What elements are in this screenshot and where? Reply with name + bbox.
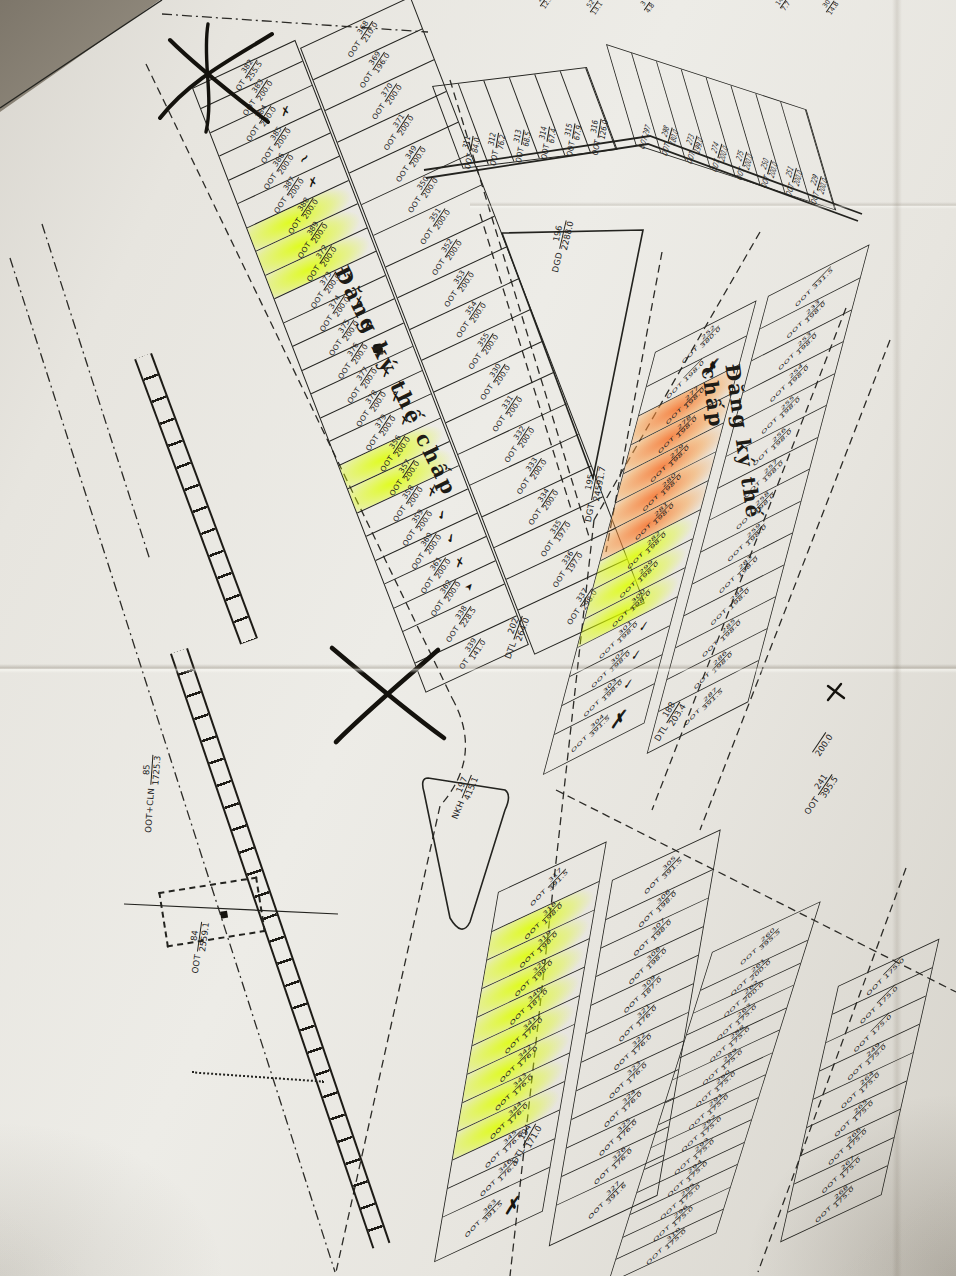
tiny-plot-label: 5213.1 xyxy=(584,0,605,17)
area-label-prefix: NKH xyxy=(449,799,465,821)
mark-arrow-icon: ➤ xyxy=(463,580,476,593)
table-backing-corner xyxy=(0,0,170,120)
area-label-prefix: DGD xyxy=(550,251,564,273)
tiny-plot-label: 147.7 xyxy=(774,0,792,13)
top-strip-left: OOT31184.0OOT31276.2OOT31368.5OOT31467.4… xyxy=(432,67,618,169)
hatched-road-segment xyxy=(134,353,258,645)
mark-x-icon: ✗ xyxy=(307,175,319,190)
mark-squiggle-icon: ~ xyxy=(296,150,312,167)
tiny-plot-label: 34.8 xyxy=(638,0,656,15)
mark-check-icon: ✔ xyxy=(623,677,632,692)
photo-corner-shadow xyxy=(0,1056,320,1276)
area-label-prefix: DGT xyxy=(583,502,596,522)
area-label-dgd: DGD 1962288.0 xyxy=(545,218,576,274)
plot-label: OOT316126.0 xyxy=(586,116,610,158)
dotted-line xyxy=(192,1071,324,1082)
area-label-prefix: OOT xyxy=(190,953,203,974)
area-label-area: 2559.1 xyxy=(197,922,211,953)
mark-check-icon: ✔ xyxy=(631,648,640,663)
map-photo: OT382255.5OOT383200.0OOT384200.0✗OOT3852… xyxy=(0,0,956,1276)
plot-label: OOT297 xyxy=(637,122,652,151)
dashed-building-outline xyxy=(158,877,266,948)
building-dot xyxy=(220,911,228,919)
area-label-edge200: 200.0 xyxy=(812,732,834,758)
mark-bigx-icon: ✗ xyxy=(609,705,629,732)
area-label-prefix: OOT+CLN xyxy=(143,788,156,833)
mark-x-icon: ✗ xyxy=(454,555,466,570)
tiny-plot-label: 2512.5 xyxy=(534,0,555,11)
block-d-right-column: OOT175.0OOT175.0OOT175.0OOT249175.0OOT26… xyxy=(780,939,939,1243)
area-label-prefix: DTL xyxy=(502,640,517,660)
top-strip-right: OOT297OOT298180.0OOT273199.0OOT274200.0O… xyxy=(606,44,836,211)
area-label-area: 1725.3 xyxy=(150,755,162,785)
area-label-nkh: NKH 197415.1 xyxy=(445,772,480,822)
plot-label: OOT229200.0 xyxy=(806,170,830,210)
area-label-oot241: OOT 241395.5 xyxy=(798,769,840,819)
mark-x-icon: ✗ xyxy=(279,104,291,119)
area-label-area: 2288.0 xyxy=(559,220,576,251)
area-label-prefix: DTL xyxy=(509,1145,526,1165)
mark-check-icon: ✔ xyxy=(444,532,457,547)
mark-bigx-icon: ✗ xyxy=(503,1192,522,1219)
tiny-plot-label: 3014.8 xyxy=(820,0,841,17)
mark-check-icon: ✔ xyxy=(639,619,648,634)
area-label-prefix: OOT xyxy=(802,794,821,816)
area-label-area: 200.0 xyxy=(812,732,834,758)
paper-fold-crease xyxy=(470,202,956,209)
mark-check-icon: ✔ xyxy=(435,508,448,523)
area-label-area: 24591.7 xyxy=(591,466,608,502)
area-label-ootcln85: OOT+CLN 851725.3 xyxy=(138,755,163,834)
